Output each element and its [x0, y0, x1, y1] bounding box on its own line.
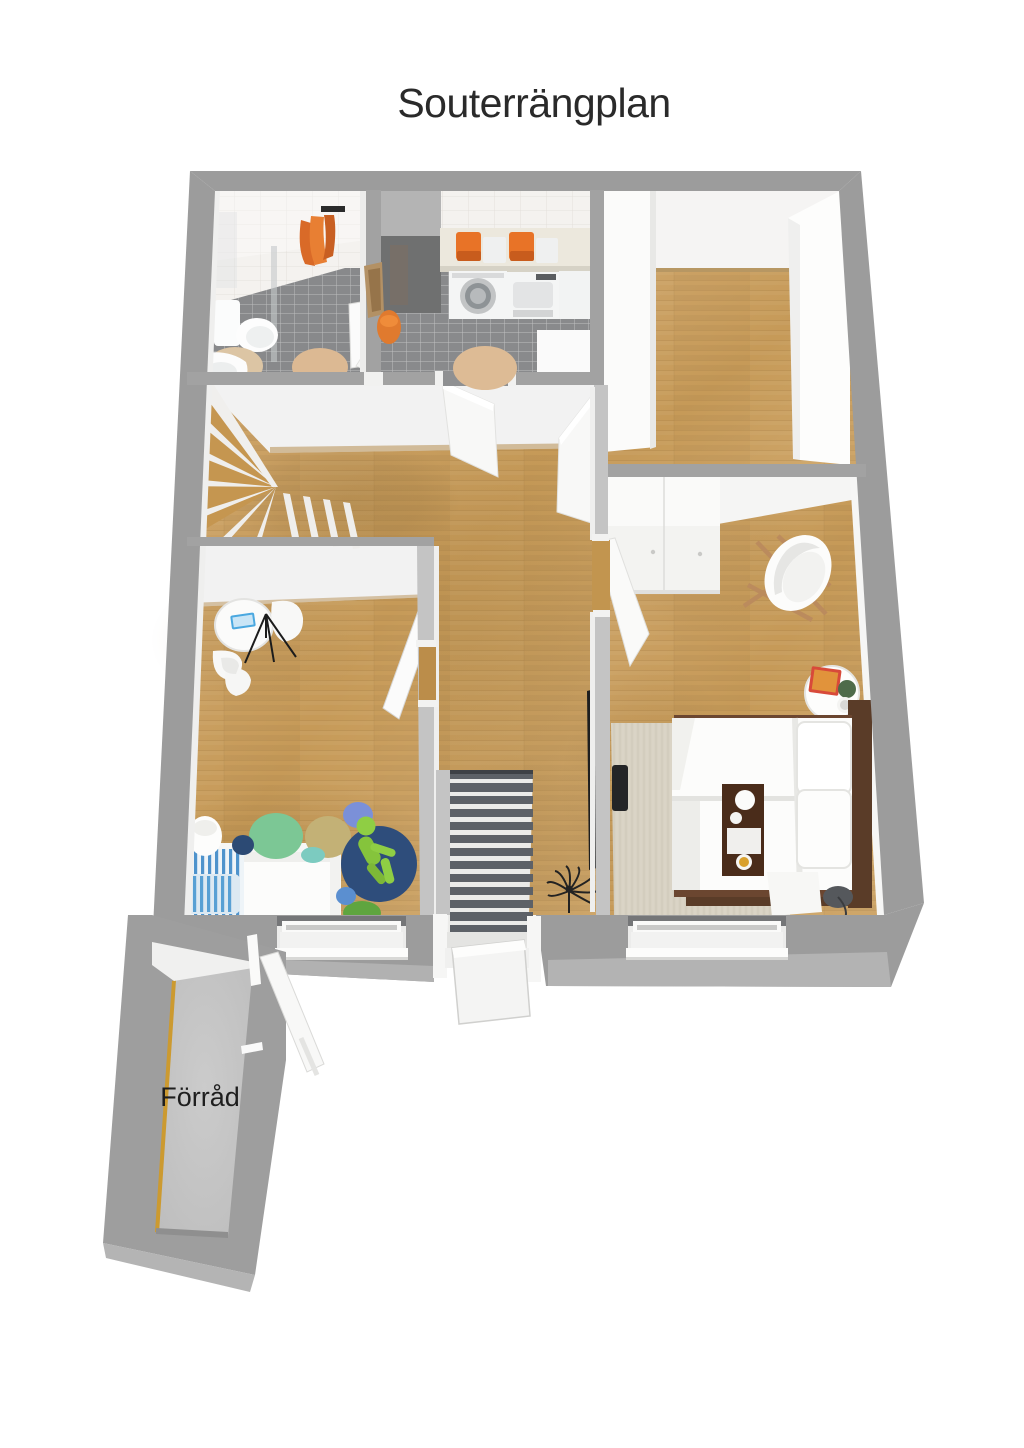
svg-text:Souterrängplan: Souterrängplan: [397, 80, 670, 126]
svg-text:Förråd: Förråd: [160, 1082, 240, 1112]
